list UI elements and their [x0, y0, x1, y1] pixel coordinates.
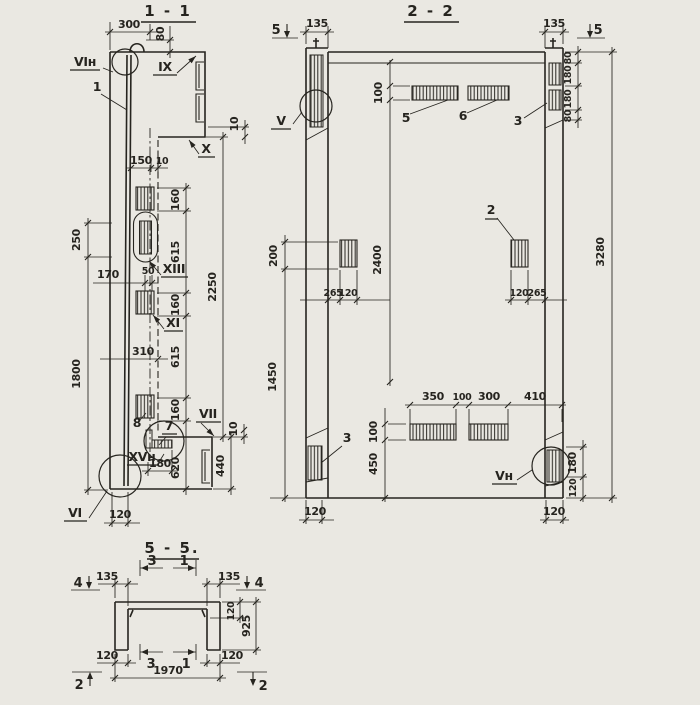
embedded-item-bottom-left-bar [410, 424, 456, 440]
dim-120-flange: 120 [226, 601, 237, 621]
embedded-item-7-flange [146, 430, 152, 448]
dim-120-right-bottom: 120 [568, 478, 579, 498]
dim-135-right: 135 [543, 17, 565, 30]
cut-marker-3-bottom: 3 [147, 657, 156, 672]
dim-135-left: 135 [306, 17, 328, 30]
dim-120-bottom-left: 120 [304, 505, 327, 518]
dim-160-2: 160 [169, 293, 182, 316]
cut-marker-1-top: 1 [180, 554, 189, 569]
dim-10-step: 10 [228, 116, 241, 131]
embedded-item-mid-left [340, 240, 357, 267]
right-rib-hatch-top-1 [549, 63, 561, 85]
node-label-xv-n: XVн [128, 449, 155, 464]
dim-925: 925 [240, 615, 253, 637]
dim-2250: 2250 [206, 272, 219, 302]
dim-265-right: 265 [528, 288, 547, 299]
dim-80-2: 80 [563, 109, 574, 122]
section-5-5: 5 - 5. 135 135 120 925 120 120 1970 4 4 … [71, 539, 267, 694]
cut-marker-4-left: 4 [74, 576, 83, 591]
dim-120-left: 120 [339, 288, 359, 299]
item-label-5: 5 [402, 110, 410, 125]
dim-310: 310 [132, 345, 155, 358]
embedded-item-6 [468, 86, 509, 100]
item-label-7: 7 [165, 418, 173, 433]
dim-170: 170 [97, 268, 120, 281]
dim-1970: 1970 [153, 664, 183, 677]
drawing-sheet: 1 - 1 300 80 150 10 250 [0, 0, 700, 700]
dim-615-2: 615 [169, 346, 182, 368]
dim-300-bottom: 300 [478, 390, 501, 403]
dim-120-bottom-right: 120 [543, 505, 566, 518]
dim-3280: 3280 [594, 237, 607, 267]
dim-80-1: 80 [563, 51, 574, 64]
dim-150: 150 [130, 154, 153, 167]
dim-160-1: 160 [169, 188, 182, 211]
embedded-item-xiii-core [140, 221, 152, 254]
dim-250: 250 [70, 228, 83, 251]
embedded-item-5 [412, 86, 458, 100]
right-rib-hatch-top-2 [549, 90, 561, 110]
node-circle-vi-n [112, 49, 138, 75]
node-label-ix: IX [158, 59, 172, 74]
section-2-2-title: 2 - 2 [407, 2, 455, 20]
item-label-3-bottom: 3 [343, 430, 351, 445]
dim-450: 450 [367, 452, 380, 475]
cut-marker-1-bottom: 1 [182, 657, 191, 672]
dim-440: 440 [214, 454, 227, 477]
channel-outline-5-5 [115, 602, 220, 650]
dim-615-1: 615 [169, 241, 182, 263]
right-rib-hatch-bottom [547, 450, 561, 482]
dim-100-bottom: 100 [367, 420, 380, 443]
dim-120-right: 120 [510, 288, 530, 299]
dim-1450: 1450 [266, 362, 279, 392]
dim-50: 50 [142, 266, 155, 277]
cut-marker-5-left: 5 [272, 23, 281, 38]
node-label-x: X [201, 141, 211, 156]
embedded-item-2 [511, 240, 528, 267]
dim-120-bottom-left-55: 120 [96, 649, 119, 662]
cut-marker-3-top: 3 [148, 554, 157, 569]
dim-410: 410 [524, 390, 547, 403]
node-label-v: V [276, 113, 286, 128]
node-label-xiii: XIII [163, 261, 185, 276]
dim-10-top: 10 [156, 156, 169, 167]
dim-10-bottom: 10 [227, 421, 240, 436]
dim-100-mid: 100 [453, 392, 473, 403]
dim-135-left-55: 135 [96, 570, 118, 583]
dim-2400: 2400 [371, 245, 384, 275]
dim-120-bottom: 120 [109, 508, 132, 521]
section-2-2: 2 - 2 135 135 80 [266, 2, 617, 524]
dim-135-right-55: 135 [218, 570, 240, 583]
left-rib-hatch-bottom [308, 446, 322, 480]
cut-marker-2-right: 2 [259, 679, 268, 694]
dim-100-top: 100 [372, 81, 385, 104]
section-1-1-title: 1 - 1 [144, 2, 192, 20]
node-label-vi-n: VIн [74, 54, 96, 69]
structural-drawing-canvas: 1 - 1 300 80 150 10 250 [0, 0, 700, 700]
embedded-item-b [136, 291, 154, 314]
embedded-item-bottom-right-bar [469, 424, 508, 440]
node-label-vi: VI [68, 505, 82, 520]
dim-350: 350 [422, 390, 445, 403]
dim-180-1: 180 [563, 65, 574, 85]
item-label-2: 2 [487, 202, 495, 217]
item-label-1: 1 [93, 79, 101, 94]
node-label-v-n: Vн [495, 468, 513, 483]
dim-80: 80 [154, 26, 167, 41]
dim-1800: 1800 [70, 359, 83, 389]
section-1-1: 1 - 1 300 80 150 10 250 [64, 2, 249, 527]
node-label-xi: XI [166, 315, 180, 330]
dim-120-bottom-right-55: 120 [221, 649, 244, 662]
dim-200: 200 [267, 244, 280, 267]
item-label-3-top: 3 [514, 113, 522, 128]
item-label-8: 8 [133, 415, 141, 430]
cut-marker-5-right: 5 [594, 23, 603, 38]
cut-marker-4-right: 4 [255, 576, 264, 591]
item-label-6: 6 [459, 108, 468, 123]
dim-180-2: 180 [563, 89, 574, 109]
cut-marker-2-left: 2 [75, 678, 84, 693]
dim-180-right: 180 [566, 451, 579, 474]
node-label-vii: VII [199, 406, 217, 421]
embedded-item-a [136, 187, 154, 210]
dim-300: 300 [118, 18, 141, 31]
